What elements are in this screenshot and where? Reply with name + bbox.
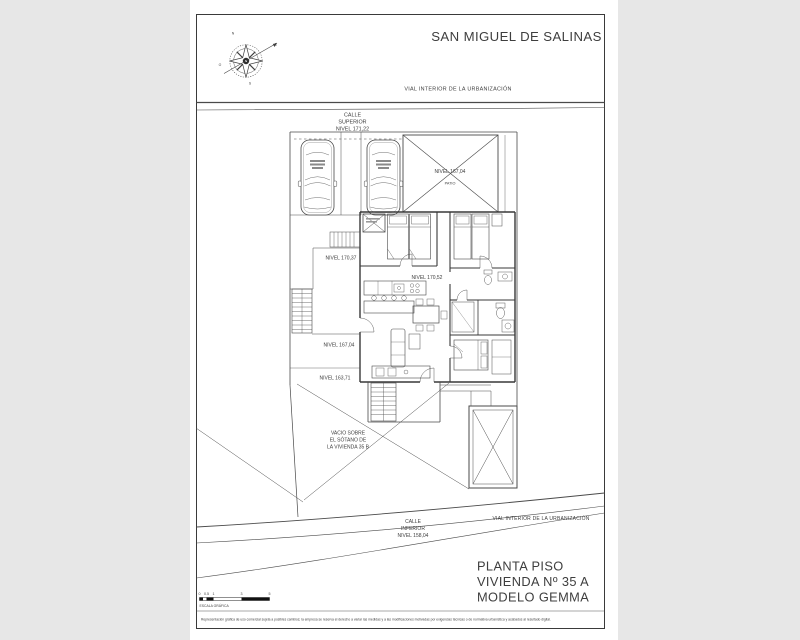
void-note-line2: EL SÓTANO DE [330, 437, 367, 444]
sheet-canvas: N O S E [0, 0, 800, 640]
level-interior: NIVEL 170,52 [412, 275, 443, 281]
compass-rose-icon: N O S E [219, 32, 278, 86]
level-terrace-low: NIVEL 167,04 [324, 343, 355, 349]
calle-superior-line3: NIVEL 171,22 [336, 127, 369, 133]
compass-north-label: N [232, 32, 235, 36]
door-swings [360, 254, 492, 382]
void-note-line1: VACIO SOBRE [331, 431, 366, 437]
compass-south-label: S [249, 82, 252, 86]
scale-tick-05: 0.5 [204, 592, 209, 596]
scale-tick-1: 1 [213, 592, 215, 596]
calle-superior-line2: SUPERIOR [338, 120, 366, 126]
compass-east-label: E [275, 43, 278, 47]
garage-roof-sublabel: PATIO [445, 182, 456, 186]
car-top-view-icon [364, 140, 403, 215]
level-terrace-mid: NIVEL 170,37 [326, 256, 357, 262]
calle-superior-line1: CALLE [344, 113, 361, 119]
scale-tick-5: 5 [269, 592, 271, 596]
top-street-lines [197, 103, 605, 111]
compass-west-label: O [219, 63, 222, 67]
car-top-view-icon [298, 140, 337, 215]
scale-bar: 0 0.5 1 3 5 ESCALA GRÁFICA [199, 592, 271, 608]
titleblock-line2: VIVIENDA Nº 35 A [477, 574, 589, 589]
calle-inferior-line1: CALLE [405, 519, 422, 525]
void-note-line3: LA VIVIENDA 35 B [327, 445, 370, 451]
scale-tick-3: 3 [241, 592, 243, 596]
furniture [364, 214, 514, 378]
road-bottom-label: VIAL INTERIOR DE LA URBANIZACIÓN [492, 515, 589, 522]
lift-shaft-box [363, 214, 385, 232]
scale-tick-0: 0 [199, 592, 201, 596]
garage-roof-level: NIVEL 167,04 [435, 169, 466, 175]
titleblock-line1: PLANTA PISO [477, 559, 564, 574]
plan-drawing: N O S E [0, 0, 800, 640]
level-terrace-lowest: NIVEL 163,71 [320, 376, 351, 382]
scale-caption: ESCALA GRÁFICA [200, 604, 230, 608]
road-top-label: VIAL INTERIOR DE LA URBANIZACIÓN [404, 86, 511, 93]
calle-inferior-line3: NIVEL 158,04 [398, 533, 429, 539]
disclaimer-text: Representación gráfica de uso comercial … [201, 618, 551, 622]
sheet-title: SAN MIGUEL DE SALINAS [431, 29, 602, 44]
calle-inferior-line2: INFERIOR [401, 526, 425, 532]
titleblock-line3: MODELO GEMMA [477, 590, 589, 605]
labels: SAN MIGUEL DE SALINAS VIAL INTERIOR DE L… [201, 29, 602, 622]
